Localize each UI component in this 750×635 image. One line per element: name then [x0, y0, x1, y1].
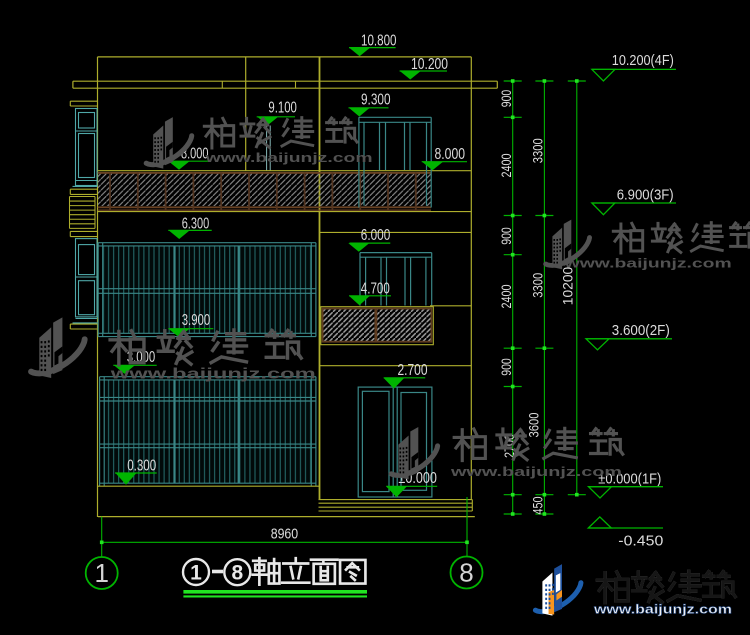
svg-text:8: 8: [459, 558, 473, 588]
svg-text:3300: 3300: [530, 138, 546, 163]
svg-text:3.600(2F): 3.600(2F): [612, 323, 670, 339]
svg-text:www.baijunjz.com: www.baijunjz.com: [449, 465, 622, 479]
svg-text:3300: 3300: [530, 273, 546, 298]
svg-text:0.300: 0.300: [127, 458, 156, 475]
svg-text:8: 8: [231, 562, 243, 585]
svg-text:www.baijunjz.com: www.baijunjz.com: [204, 151, 373, 165]
svg-text:2400: 2400: [498, 153, 514, 177]
svg-text:6.000: 6.000: [361, 227, 391, 244]
svg-text:8960: 8960: [271, 525, 299, 542]
svg-text:-0.450: -0.450: [618, 533, 663, 549]
svg-text:4.700: 4.700: [361, 281, 390, 298]
svg-text:1: 1: [190, 562, 202, 585]
svg-text:www.baijunjz.com: www.baijunjz.com: [109, 367, 316, 383]
svg-text:9.100: 9.100: [268, 100, 297, 117]
svg-text:2.700: 2.700: [398, 362, 428, 379]
svg-text:900: 900: [498, 358, 514, 376]
svg-text:6.900(3F): 6.900(3F): [617, 187, 674, 203]
svg-text:8.000: 8.000: [435, 146, 466, 163]
svg-text:900: 900: [498, 227, 514, 245]
svg-text:3.900: 3.900: [182, 312, 211, 329]
svg-text:3600: 3600: [526, 412, 542, 437]
svg-text:450: 450: [530, 496, 546, 514]
svg-text:1: 1: [94, 558, 108, 588]
svg-text:9.300: 9.300: [361, 91, 391, 108]
svg-text:10200: 10200: [560, 267, 576, 306]
svg-text:10.200(4F): 10.200(4F): [612, 53, 674, 69]
svg-text:10.200: 10.200: [411, 56, 448, 73]
svg-text:www.baijunjz.com: www.baijunjz.com: [593, 603, 732, 617]
svg-text:www.baijunjz.com: www.baijunjz.com: [563, 257, 732, 271]
svg-text:900: 900: [498, 90, 514, 108]
svg-text:2400: 2400: [498, 284, 514, 308]
